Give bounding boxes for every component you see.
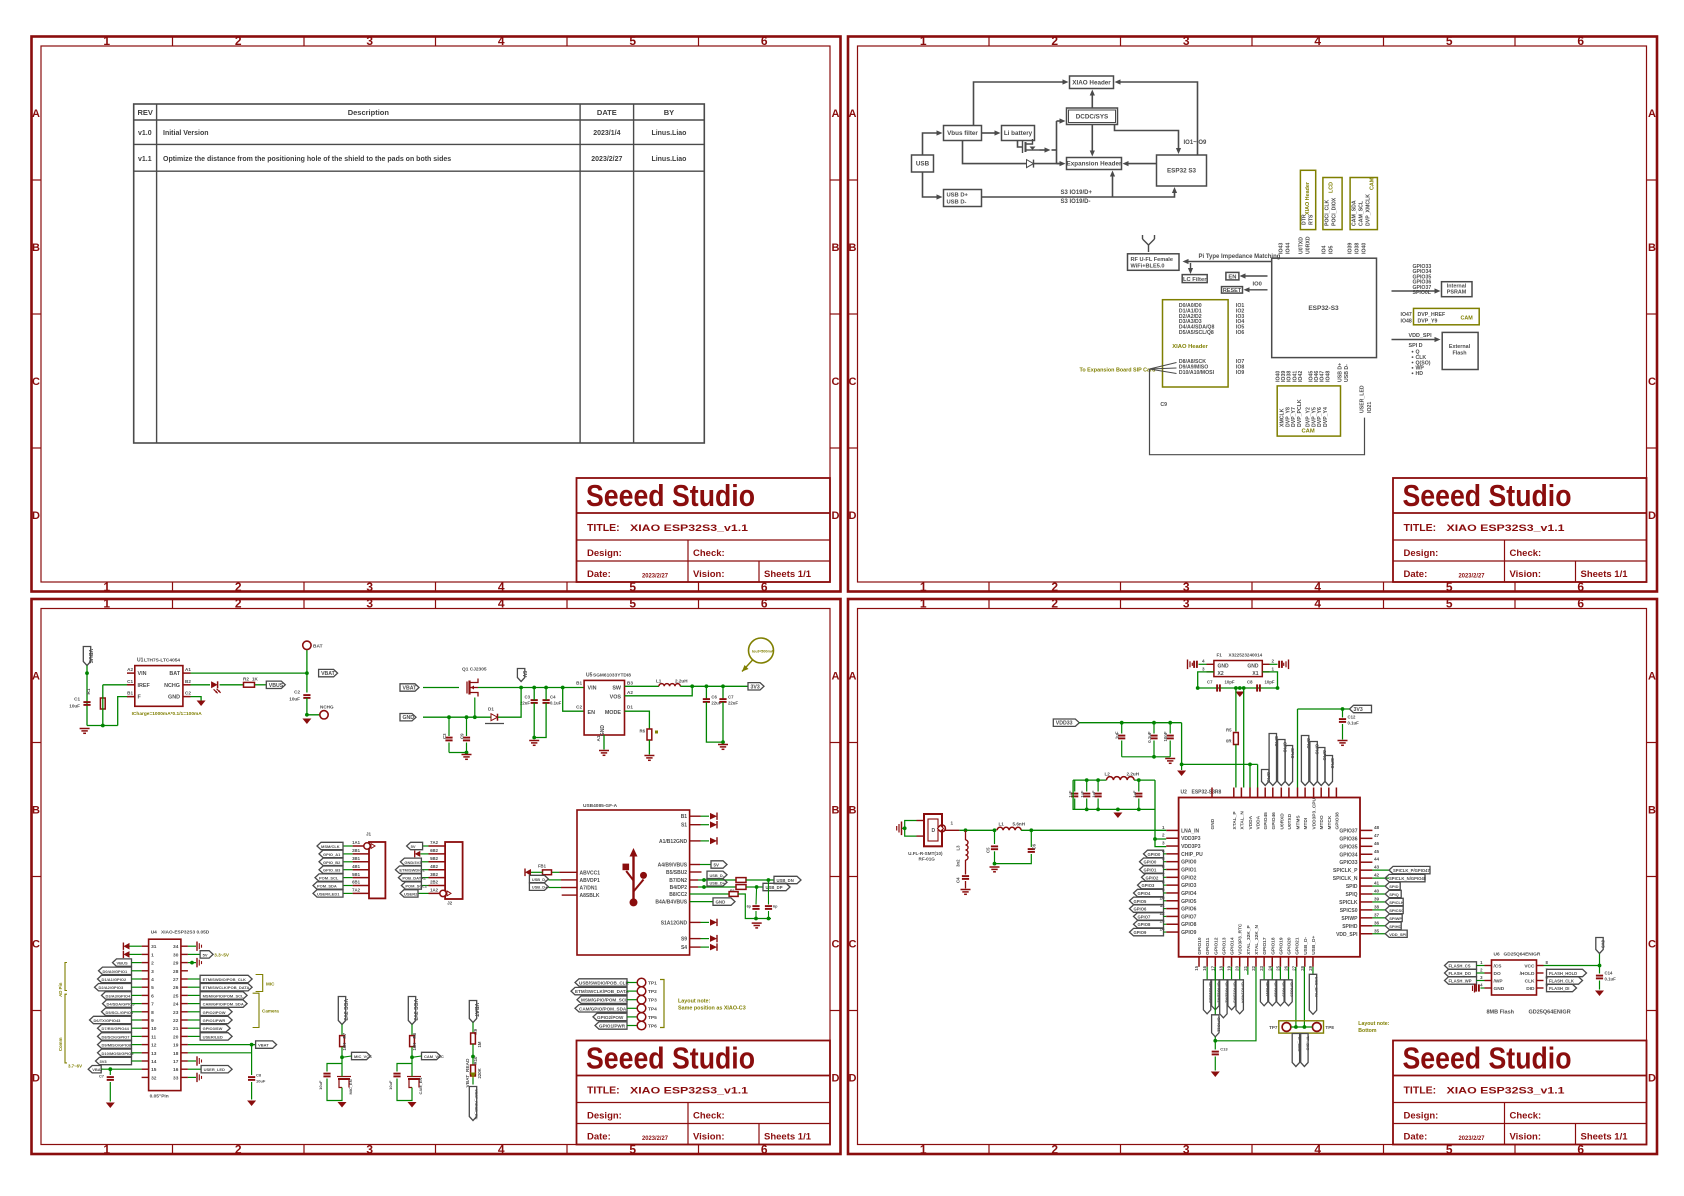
svg-text:D10/A10/MOSI: D10/A10/MOSI bbox=[1179, 370, 1215, 376]
svg-text:SPICLK: SPICLK bbox=[1339, 900, 1358, 906]
svg-text:L1: L1 bbox=[656, 679, 662, 684]
svg-text:19: 19 bbox=[1227, 965, 1232, 970]
svg-text:10: 10 bbox=[1159, 895, 1165, 900]
svg-text:IREF: IREF bbox=[138, 683, 151, 689]
svg-text:XIAO-ESP32S3 0.05D: XIAO-ESP32S3 0.05D bbox=[161, 930, 210, 936]
svg-text:41: 41 bbox=[1374, 881, 1380, 886]
svg-text:IO21: IO21 bbox=[1367, 402, 1373, 413]
svg-text:5V: 5V bbox=[714, 863, 719, 868]
svg-text:IO6: IO6 bbox=[1236, 330, 1244, 336]
svg-text:VBAT: VBAT bbox=[403, 686, 418, 692]
svg-text:39: 39 bbox=[1374, 896, 1380, 901]
svg-text:3: 3 bbox=[1162, 841, 1165, 846]
svg-text:MTCK: MTCK bbox=[1327, 815, 1333, 829]
svg-text:To Expansion Board SIP Card: To Expansion Board SIP Card bbox=[1080, 368, 1156, 374]
svg-text:1uF: 1uF bbox=[1115, 731, 1120, 739]
svg-text:C: C bbox=[832, 939, 840, 951]
svg-text:GPIO4: GPIO4 bbox=[1138, 891, 1151, 896]
svg-text:TP_DIO: TP_DIO bbox=[1305, 1036, 1310, 1050]
svg-text:GPIO13/X3: GPIO13/X3 bbox=[1233, 982, 1238, 1003]
svg-text:POCI_CLK: POCI_CLK bbox=[1325, 200, 1331, 226]
svg-text:A: A bbox=[832, 108, 840, 120]
svg-text:POM_SCL2: POM_SCL2 bbox=[405, 884, 427, 889]
svg-text:SPICLK: SPICLK bbox=[1389, 900, 1404, 905]
svg-text:GPIO6: GPIO6 bbox=[1181, 907, 1197, 913]
svg-text:0R: 0R bbox=[1226, 739, 1232, 744]
svg-text:1: 1 bbox=[1272, 667, 1275, 672]
svg-text:2023/2/27: 2023/2/27 bbox=[642, 574, 669, 580]
svg-text:D7/RX/GPIO44: D7/RX/GPIO44 bbox=[102, 1026, 130, 1031]
svg-text:C: C bbox=[1648, 376, 1656, 388]
svg-text:C8: C8 bbox=[1247, 680, 1253, 685]
svg-text:D: D bbox=[849, 1073, 857, 1085]
svg-text:C4: C4 bbox=[550, 695, 556, 700]
svg-text:IO1~IO9: IO1~IO9 bbox=[1184, 140, 1208, 146]
svg-text:IO44: IO44 bbox=[1286, 243, 1292, 254]
svg-text:GPIO18: GPIO18 bbox=[1273, 982, 1278, 997]
svg-text:3: 3 bbox=[1183, 1143, 1190, 1157]
svg-text:0.1uF: 0.1uF bbox=[1147, 731, 1152, 743]
svg-text:C3: C3 bbox=[442, 733, 447, 739]
svg-text:20: 20 bbox=[173, 1034, 179, 1040]
svg-text:23: 23 bbox=[1259, 965, 1264, 970]
svg-text:44: 44 bbox=[1374, 857, 1380, 862]
svg-text:GPIO14/X4: GPIO14/X4 bbox=[1241, 982, 1246, 1003]
svg-text:GPIO2: GPIO2 bbox=[1181, 875, 1197, 881]
svg-text:0.05"Pin: 0.05"Pin bbox=[150, 1094, 169, 1100]
svg-text:XIAO ESP32S3_v1.1: XIAO ESP32S3_v1.1 bbox=[1447, 523, 1566, 534]
svg-text:IO43: IO43 bbox=[1279, 243, 1285, 254]
svg-text:GND: GND bbox=[403, 715, 415, 721]
svg-text:DVP_XMCLK: DVP_XMCLK bbox=[1366, 194, 1372, 226]
svg-text:MIC: MIC bbox=[266, 982, 275, 987]
svg-text:TP7: TP7 bbox=[1269, 1025, 1278, 1030]
svg-text:5: 5 bbox=[1446, 34, 1453, 48]
svg-text:SPIQ: SPIQ bbox=[1346, 892, 1358, 898]
svg-text:TP1: TP1 bbox=[648, 981, 657, 987]
svg-text:GND: GND bbox=[716, 900, 726, 905]
svg-text:FLASH_DI: FLASH_DI bbox=[1549, 986, 1569, 991]
svg-text:GPIO17: GPIO17 bbox=[1265, 982, 1270, 997]
svg-text:S3 IO19/D+: S3 IO19/D+ bbox=[1061, 190, 1093, 196]
svg-text:S1A12GND: S1A12GND bbox=[661, 920, 688, 926]
svg-text:12: 12 bbox=[151, 1043, 157, 1049]
svg-text:5: 5 bbox=[151, 985, 154, 991]
svg-text:SW: SW bbox=[612, 686, 622, 692]
svg-text:Date:: Date: bbox=[1404, 569, 1428, 580]
svg-text:2B2: 2B2 bbox=[430, 880, 438, 885]
svg-text:L3: L3 bbox=[956, 845, 961, 851]
svg-text:GPIO2/POW: GPIO2/POW bbox=[597, 1015, 624, 1020]
svg-text:Seeed Studio: Seeed Studio bbox=[586, 479, 755, 513]
svg-text:GD25Q64ENIGR: GD25Q64ENIGR bbox=[1529, 1010, 1571, 1016]
svg-text:Vision:: Vision: bbox=[693, 569, 725, 580]
svg-text:C: C bbox=[832, 376, 840, 388]
svg-text:ETM/SWCLK/POB_DATA: ETM/SWCLK/POB_DATA bbox=[203, 985, 250, 990]
svg-text:D8/SCK/GPIO7: D8/SCK/GPIO7 bbox=[102, 1034, 131, 1039]
svg-text:25: 25 bbox=[1275, 965, 1280, 970]
svg-text:43: 43 bbox=[1374, 865, 1380, 870]
svg-text:D: D bbox=[1648, 1073, 1656, 1085]
svg-text:C6: C6 bbox=[1032, 843, 1037, 849]
svg-text:C: C bbox=[849, 376, 857, 388]
svg-text:14: 14 bbox=[151, 1059, 157, 1065]
svg-text:IO47: IO47 bbox=[1401, 312, 1412, 318]
svg-text:1: 1 bbox=[920, 580, 927, 594]
svg-text:SPICLK_P/GPIO47: SPICLK_P/GPIO47 bbox=[1393, 868, 1430, 873]
svg-text:VBAT: VBAT bbox=[258, 1043, 269, 1048]
svg-text:C7: C7 bbox=[728, 695, 734, 700]
svg-text:D: D bbox=[1648, 510, 1656, 522]
svg-text:TP3: TP3 bbox=[648, 998, 657, 1004]
svg-text:13: 13 bbox=[151, 1051, 157, 1057]
svg-text:GPIO4: GPIO4 bbox=[1181, 891, 1197, 897]
svg-text:D6/TX/GPIO43: D6/TX/GPIO43 bbox=[94, 1018, 122, 1023]
svg-text:GPIO38: GPIO38 bbox=[1334, 812, 1340, 830]
svg-text:VDD3P3_RTC: VDD3P3_RTC bbox=[1238, 923, 1244, 955]
svg-text:USB_D-: USB_D- bbox=[1303, 937, 1309, 955]
svg-text:J2: J2 bbox=[447, 901, 453, 906]
svg-text:22: 22 bbox=[173, 1018, 179, 1024]
svg-text:USB D+: USB D+ bbox=[1338, 363, 1344, 382]
svg-text:VCC: VCC bbox=[1524, 964, 1535, 970]
svg-text:U.FL-R-SMT(10): U.FL-R-SMT(10) bbox=[908, 851, 943, 856]
svg-text:EN: EN bbox=[588, 710, 596, 716]
svg-text:GPIO5: GPIO5 bbox=[1181, 899, 1197, 905]
svg-text:D: D bbox=[32, 510, 40, 522]
svg-text:Date:: Date: bbox=[1404, 1132, 1428, 1143]
svg-text:B5/SBU2: B5/SBU2 bbox=[666, 870, 687, 876]
svg-text:A1: A1 bbox=[185, 667, 191, 672]
svg-text:GPIO6: GPIO6 bbox=[1134, 907, 1147, 912]
svg-text:B1: B1 bbox=[576, 681, 582, 686]
svg-text:MODE: MODE bbox=[605, 710, 622, 716]
svg-text:3.3~5V: 3.3~5V bbox=[214, 952, 230, 957]
svg-text:IO39: IO39 bbox=[1348, 243, 1354, 254]
svg-text:Linus.Liao: Linus.Liao bbox=[651, 156, 686, 163]
svg-text:A: A bbox=[1648, 108, 1656, 120]
svg-text:Vbus filter: Vbus filter bbox=[947, 130, 978, 137]
svg-text:C2: C2 bbox=[294, 690, 300, 695]
svg-text:ETM/SWCLK/POB_DATA: ETM/SWCLK/POB_DATA bbox=[575, 989, 629, 994]
svg-text:XIAO Header: XIAO Header bbox=[1172, 344, 1208, 350]
svg-text:U0RXD: U0RXD bbox=[1279, 813, 1285, 830]
svg-text:CAM/GPIO/POM_SDA: CAM/GPIO/POM_SDA bbox=[203, 1002, 244, 1007]
svg-text:26: 26 bbox=[173, 985, 179, 991]
svg-text:D5/SCL/GPIO6: D5/SCL/GPIO6 bbox=[106, 1010, 134, 1015]
svg-text:TITLE:: TITLE: bbox=[587, 1085, 620, 1097]
svg-text:D1/A1/GPIO2: D1/A1/GPIO2 bbox=[102, 977, 127, 982]
svg-text:A4/B9/VBUS: A4/B9/VBUS bbox=[658, 863, 688, 869]
svg-text:10pF: 10pF bbox=[1225, 680, 1235, 685]
svg-text:Camera: Camera bbox=[262, 1009, 279, 1014]
svg-text:Sheets 1/1: Sheets 1/1 bbox=[764, 1132, 812, 1143]
svg-text:Layout note:: Layout note: bbox=[678, 999, 711, 1005]
svg-text:1: 1 bbox=[951, 821, 954, 826]
svg-text:0.1uF: 0.1uF bbox=[550, 701, 562, 706]
svg-text:Bottom: Bottom bbox=[1358, 1028, 1377, 1034]
svg-text:A7/DN1: A7/DN1 bbox=[580, 886, 598, 892]
svg-text:USB_D-: USB_D- bbox=[710, 873, 725, 878]
svg-text:GND: GND bbox=[1247, 664, 1259, 670]
svg-text:GPIO20: GPIO20 bbox=[1290, 982, 1295, 997]
svg-text:Same position as XIAO-C3: Same position as XIAO-C3 bbox=[678, 1006, 746, 1012]
svg-text:Check:: Check: bbox=[693, 548, 725, 559]
svg-text:1A1: 1A1 bbox=[352, 840, 360, 845]
svg-text:1uF: 1uF bbox=[1091, 790, 1096, 798]
svg-text:U5: U5 bbox=[586, 673, 593, 679]
svg-text:5V: 5V bbox=[411, 844, 416, 849]
svg-text:GPIO17: GPIO17 bbox=[1262, 937, 1268, 955]
svg-text:B: B bbox=[832, 805, 840, 817]
svg-text:DVP_Y4: DVP_Y4 bbox=[1323, 407, 1329, 427]
svg-text:1uF: 1uF bbox=[1068, 790, 1073, 798]
svg-text:BY: BY bbox=[664, 108, 674, 117]
svg-text:SPID: SPID bbox=[1346, 884, 1358, 890]
svg-text:1uF: 1uF bbox=[1132, 790, 1137, 798]
svg-text:2: 2 bbox=[235, 34, 242, 48]
svg-text:GPIO19: GPIO19 bbox=[1281, 982, 1286, 997]
svg-text:REV: REV bbox=[137, 108, 152, 117]
svg-text:21: 21 bbox=[173, 1026, 179, 1032]
svg-text:Seeed Studio: Seeed Studio bbox=[1403, 1042, 1572, 1076]
svg-text:46: 46 bbox=[1374, 841, 1380, 846]
svg-text:C9: C9 bbox=[1160, 402, 1167, 408]
svg-text:USER_LED: USER_LED bbox=[204, 1067, 225, 1072]
svg-text:3V3: 3V3 bbox=[1601, 940, 1606, 948]
svg-text:B: B bbox=[849, 805, 857, 817]
svg-text:S4: S4 bbox=[681, 945, 687, 951]
svg-text:GPIO: GPIO bbox=[1290, 748, 1295, 759]
svg-text:GND/3V3: GND/3V3 bbox=[404, 860, 422, 865]
svg-text:2: 2 bbox=[1051, 1143, 1058, 1157]
svg-text:NCHG: NCHG bbox=[320, 705, 334, 710]
svg-text:LTH7S-LTC4054: LTH7S-LTC4054 bbox=[144, 658, 180, 664]
svg-text:XTAL_N: XTAL_N bbox=[1239, 811, 1245, 830]
svg-text:R7: R7 bbox=[342, 1032, 347, 1038]
svg-text:USB_DP/U: USB_DP/U bbox=[1314, 977, 1319, 997]
svg-text:CAM_SDA: CAM_SDA bbox=[1352, 200, 1358, 226]
svg-text:USER_LED: USER_LED bbox=[1360, 385, 1366, 413]
svg-text:GPIO34: GPIO34 bbox=[1339, 852, 1357, 858]
svg-text:ETM/SWDIO2: ETM/SWDIO2 bbox=[399, 868, 425, 873]
svg-text:WiFi+BLE5.0: WiFi+BLE5.0 bbox=[1131, 264, 1165, 270]
svg-text:B: B bbox=[32, 805, 40, 817]
svg-text:A: A bbox=[32, 671, 40, 683]
svg-text:CHIP_PU: CHIP_PU bbox=[1181, 852, 1203, 858]
svg-text:USB_D+: USB_D+ bbox=[1311, 936, 1317, 955]
svg-text:D9/MISO/GPIO8: D9/MISO/GPIO8 bbox=[102, 1043, 133, 1048]
svg-text:6p: 6p bbox=[773, 905, 778, 909]
svg-text:EN: EN bbox=[1228, 274, 1236, 280]
svg-text:GND: GND bbox=[1210, 818, 1216, 829]
svg-text:GPIO_B2: GPIO_B2 bbox=[323, 860, 341, 865]
svg-text:38: 38 bbox=[1374, 904, 1380, 909]
svg-text:B: B bbox=[849, 242, 857, 254]
svg-text:XIAO Header: XIAO Header bbox=[1305, 181, 1311, 215]
svg-text:45: 45 bbox=[1374, 849, 1380, 854]
svg-text:MTDI: MTDI bbox=[1303, 817, 1309, 829]
svg-text:X1: X1 bbox=[1252, 671, 1258, 677]
svg-text:CAM: CAM bbox=[1370, 177, 1376, 190]
svg-text:5V: 5V bbox=[521, 671, 527, 678]
svg-text:1: 1 bbox=[103, 580, 110, 594]
svg-text:VDD33: VDD33 bbox=[1056, 721, 1073, 727]
svg-text:B: B bbox=[32, 242, 40, 254]
svg-text:POM_SDA: POM_SDA bbox=[317, 884, 337, 889]
svg-text:DCDC/SYS: DCDC/SYS bbox=[1076, 113, 1109, 120]
svg-text:Initial Version: Initial Version bbox=[163, 130, 209, 137]
svg-text:v1.0: v1.0 bbox=[138, 130, 152, 137]
svg-text:Design:: Design: bbox=[1404, 1111, 1439, 1122]
svg-text:D0/A0/GPIO1: D0/A0/GPIO1 bbox=[103, 969, 128, 974]
svg-text:B: B bbox=[1648, 805, 1656, 817]
svg-text:D: D bbox=[832, 510, 840, 522]
svg-text:ESP32 S3: ESP32 S3 bbox=[1167, 168, 1197, 175]
svg-text:29: 29 bbox=[1308, 965, 1313, 970]
svg-text:Comm: Comm bbox=[58, 1037, 63, 1051]
svg-text:Check:: Check: bbox=[1510, 1111, 1542, 1122]
svg-text:SPID: SPID bbox=[1389, 884, 1398, 889]
svg-text:5B2: 5B2 bbox=[430, 856, 438, 861]
svg-text:GPIO_B3: GPIO_B3 bbox=[323, 868, 341, 873]
svg-text:IO48: IO48 bbox=[1401, 319, 1412, 325]
svg-text:C: C bbox=[849, 939, 857, 951]
svg-text:5: 5 bbox=[629, 34, 636, 48]
svg-text:VDD3P3: VDD3P3 bbox=[1181, 844, 1201, 850]
svg-text:Check:: Check: bbox=[693, 1111, 725, 1122]
svg-text:FLASH_WP: FLASH_WP bbox=[1449, 979, 1472, 984]
svg-text:0.1uF: 0.1uF bbox=[1605, 977, 1617, 982]
svg-text:3n2: 3n2 bbox=[956, 859, 961, 867]
svg-text:GPIO3/SW: GPIO3/SW bbox=[203, 1026, 223, 1031]
svg-text:GPIO0: GPIO0 bbox=[1148, 852, 1161, 857]
svg-text:2023/2/27: 2023/2/27 bbox=[1459, 1136, 1486, 1142]
svg-text:DID: DID bbox=[1526, 986, 1535, 992]
svg-text:7: 7 bbox=[151, 1002, 154, 1008]
svg-text:U6: U6 bbox=[1494, 952, 1500, 958]
svg-text:GPIO20: GPIO20 bbox=[1287, 937, 1293, 955]
svg-text:XIAO ESP32S3_v1.1: XIAO ESP32S3_v1.1 bbox=[630, 523, 749, 534]
svg-text:3V3: 3V3 bbox=[100, 1059, 108, 1064]
svg-text:10uF: 10uF bbox=[388, 1080, 393, 1090]
svg-text:C1: C1 bbox=[127, 679, 133, 684]
svg-text:Design:: Design: bbox=[1404, 548, 1439, 559]
svg-text:3: 3 bbox=[366, 34, 373, 48]
svg-text:Sheets 1/1: Sheets 1/1 bbox=[1581, 1132, 1629, 1143]
svg-text:C14: C14 bbox=[1605, 971, 1613, 976]
svg-text:5.6nH: 5.6nH bbox=[1013, 822, 1026, 827]
svg-text:36: 36 bbox=[1374, 920, 1380, 925]
svg-text:3: 3 bbox=[151, 969, 154, 975]
svg-text:2023/2/27: 2023/2/27 bbox=[642, 1136, 669, 1142]
svg-text:35: 35 bbox=[1374, 928, 1380, 933]
svg-text:Vision:: Vision: bbox=[693, 1132, 725, 1143]
svg-text:220K: 220K bbox=[477, 1067, 482, 1078]
svg-text:D: D bbox=[932, 828, 936, 834]
svg-text:3: 3 bbox=[366, 580, 373, 594]
svg-text:HD: HD bbox=[1416, 371, 1424, 377]
svg-text:2.2uH: 2.2uH bbox=[675, 679, 688, 684]
svg-text:GPIO10: GPIO10 bbox=[1197, 937, 1203, 955]
svg-text:A8SBLK: A8SBLK bbox=[580, 893, 600, 899]
svg-text:4: 4 bbox=[1314, 597, 1321, 611]
svg-text:6p: 6p bbox=[747, 905, 752, 909]
svg-text:VDD_SPI: VDD_SPI bbox=[1409, 333, 1433, 339]
svg-text:VDD3P3_CPU: VDD3P3_CPU bbox=[1312, 798, 1318, 830]
svg-text:USB_D+: USB_D+ bbox=[532, 885, 548, 890]
svg-text:10: 10 bbox=[151, 1026, 157, 1032]
svg-text:C7: C7 bbox=[99, 1074, 105, 1079]
svg-text:8: 8 bbox=[1546, 960, 1549, 965]
svg-text:4B2: 4B2 bbox=[430, 864, 438, 869]
svg-text:28: 28 bbox=[173, 969, 179, 975]
svg-text:/CS: /CS bbox=[1494, 964, 1503, 970]
svg-text:1K: 1K bbox=[252, 677, 259, 682]
svg-text:GPIO1: GPIO1 bbox=[1144, 868, 1157, 873]
svg-text:B4A/B4VBUS: B4A/B4VBUS bbox=[655, 900, 687, 906]
svg-text:MSM/GPIO/POM_SCL: MSM/GPIO/POM_SCL bbox=[203, 993, 244, 998]
svg-text:DVP_PCLK: DVP_PCLK bbox=[1297, 399, 1303, 427]
svg-text:ABVCC1: ABVCC1 bbox=[580, 870, 601, 876]
svg-text:VIN: VIN bbox=[588, 686, 597, 692]
svg-text:FLASH_DO: FLASH_DO bbox=[1449, 971, 1472, 976]
svg-text:3: 3 bbox=[1480, 975, 1483, 980]
svg-text:MSM/CLK: MSM/CLK bbox=[321, 844, 340, 849]
svg-text:POCI_DIOX: POCI_DIOX bbox=[1332, 197, 1338, 226]
svg-text:ESP32-S3: ESP32-S3 bbox=[1308, 305, 1339, 312]
svg-text:GPIO12: GPIO12 bbox=[1213, 937, 1219, 955]
svg-text:22: 22 bbox=[1251, 965, 1256, 970]
svg-text:B8/CC2: B8/CC2 bbox=[669, 892, 687, 898]
svg-text:GPIO2/POW: GPIO2/POW bbox=[203, 1010, 226, 1015]
svg-text:CAM: CAM bbox=[1461, 316, 1474, 322]
svg-text:11: 11 bbox=[1160, 903, 1165, 908]
svg-text:2: 2 bbox=[1051, 597, 1058, 611]
svg-text:1: 1 bbox=[103, 34, 110, 48]
svg-text:S3 IO19/D-: S3 IO19/D- bbox=[1061, 199, 1091, 205]
svg-text:GPIO13: GPIO13 bbox=[1221, 937, 1227, 955]
svg-text:8MB Flash: 8MB Flash bbox=[1487, 1010, 1515, 1016]
svg-text:1: 1 bbox=[1480, 960, 1483, 965]
svg-text:DATE: DATE bbox=[597, 108, 617, 117]
svg-text:USB: USB bbox=[916, 161, 930, 168]
svg-text:18: 18 bbox=[173, 1051, 179, 1057]
svg-text:GPIO3: GPIO3 bbox=[1181, 883, 1197, 889]
svg-text:1: 1 bbox=[103, 1143, 110, 1157]
svg-text:X2: X2 bbox=[1218, 671, 1224, 677]
svg-text:Design:: Design: bbox=[587, 548, 622, 559]
svg-text:4: 4 bbox=[498, 597, 505, 611]
svg-text:2: 2 bbox=[1272, 659, 1275, 664]
svg-text:GPIO5: GPIO5 bbox=[1134, 899, 1147, 904]
svg-text:20: 20 bbox=[1235, 965, 1240, 970]
svg-text:SPICLK_P: SPICLK_P bbox=[1333, 868, 1358, 874]
svg-text:XTAL_32K_N: XTAL_32K_N bbox=[1254, 924, 1260, 954]
svg-text:SPIHD: SPIHD bbox=[1389, 924, 1401, 929]
svg-text:USER/LED: USER/LED bbox=[203, 1034, 223, 1039]
svg-text:GPIO0: GPIO0 bbox=[1181, 860, 1197, 866]
svg-text:VCC 3V3: VCC 3V3 bbox=[412, 999, 418, 1021]
svg-text:XIAO ESP32S3_v1.1: XIAO ESP32S3_v1.1 bbox=[1447, 1086, 1566, 1097]
svg-text:GPIO12: GPIO12 bbox=[1216, 1017, 1221, 1032]
svg-text:USB D-: USB D- bbox=[947, 200, 967, 206]
svg-text:A2: A2 bbox=[627, 690, 633, 695]
svg-text:C2: C2 bbox=[576, 705, 582, 710]
svg-text:C5: C5 bbox=[986, 847, 991, 853]
svg-text:D3/A3/GPIO4: D3/A3/GPIO4 bbox=[106, 993, 131, 998]
svg-text:GPIO10/X0: GPIO10/X0 bbox=[1208, 982, 1213, 1003]
